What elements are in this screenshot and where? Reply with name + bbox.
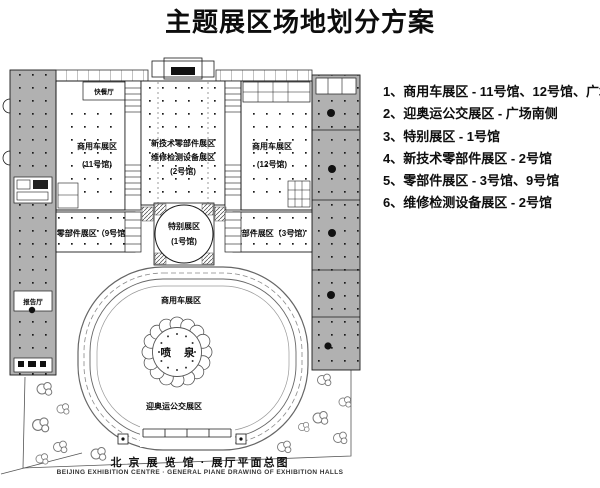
floor-plan-svg: 报告厅 快餐厅 商用车展区 (11号馆) [0, 55, 380, 475]
tree-icon [298, 422, 309, 431]
legend-item-2: 2、迎奥运公交展区 - 广场南侧 [383, 103, 598, 125]
legend-item-5: 5、零部件展区 - 3号馆、9号馆 [383, 170, 598, 192]
tree-icon [339, 397, 351, 407]
lecture-hall-label: 报告厅 [23, 297, 43, 306]
legend-item-3: 3、特别展区 - 1号馆 [383, 126, 598, 148]
legend-item-1: 1、商用车展区 - 11号馆、12号馆、广场 [383, 81, 598, 103]
tree-icon [33, 418, 49, 432]
hall-11: 快餐厅 商用车展区 (11号馆) [56, 81, 125, 210]
plaza-commercial-label: 商用车展区 [161, 295, 201, 305]
south-gate [118, 425, 246, 447]
hall-2-label-2: 维修检测设备展区 [151, 152, 215, 162]
fountain-label: 喷 泉 [161, 346, 200, 359]
hall-12-label: 商用车展区 [252, 141, 292, 151]
corridor-left [125, 81, 141, 210]
hall-11-label: 商用车展区 [77, 141, 117, 151]
tree-icon [57, 404, 69, 414]
hall-2-label-3: (2号馆) [170, 166, 196, 176]
page-title: 主题展区场地划分方案 [0, 2, 600, 39]
tree-icon [318, 374, 331, 386]
fast-food-label: 快餐厅 [94, 87, 114, 96]
garden-trees [33, 374, 351, 464]
hall-12: 商用车展区 (12号馆) [241, 81, 312, 210]
hall-2-label-1: 新技术零部件展区 [151, 138, 215, 148]
hall-12-sublabel: (12号馆) [257, 159, 288, 169]
legend-item-4: 4、新技术零部件展区 - 2号馆 [383, 148, 598, 170]
main-entrance-pavilion [152, 58, 214, 79]
tree-icon [54, 441, 67, 453]
right-wing [312, 75, 360, 370]
hall-1-label: 特别展区 [168, 221, 200, 231]
left-bay-icon [3, 151, 10, 165]
hall-9-label: 零部件展区（9号馆） [56, 228, 133, 238]
tree-icon [37, 383, 52, 396]
legend-list: 1、商用车展区 - 11号馆、12号馆、广场 2、迎奥运公交展区 - 广场南侧 … [383, 81, 598, 215]
caption-chinese: 北 京 展 览 馆 · 展厅平面总图 [0, 454, 400, 470]
legend-item-6: 6、维修检测设备展区 - 2号馆 [383, 192, 598, 214]
tree-icon [334, 432, 347, 444]
corridor-right [225, 81, 241, 210]
hall-1-sublabel: (1号馆) [171, 236, 197, 246]
hall-3-label: 零部件展区（3号馆） [233, 228, 310, 238]
plaza-olympic-label: 迎奥运公交展区 [146, 401, 202, 411]
hall-9: 零部件展区（9号馆） [56, 212, 135, 252]
hall-3: 零部件展区（3号馆） [233, 212, 312, 252]
hall-11-sublabel: (11号馆) [82, 159, 112, 169]
caption-english: BEIJING EXHIBITION CENTRE · GENERAL PIAN… [0, 469, 400, 476]
floor-plan: 报告厅 快餐厅 商用车展区 (11号馆) [0, 55, 380, 475]
left-wing: 报告厅 [3, 70, 56, 375]
fountain: 喷 泉 [142, 317, 212, 387]
tree-icon [278, 441, 291, 453]
left-bay-icon [3, 99, 10, 113]
hall-2: 新技术零部件展区 维修检测设备展区 (2号馆) [141, 81, 225, 205]
tree-icon [313, 412, 328, 425]
hall-1-round: 特别展区 (1号馆) [142, 203, 226, 265]
